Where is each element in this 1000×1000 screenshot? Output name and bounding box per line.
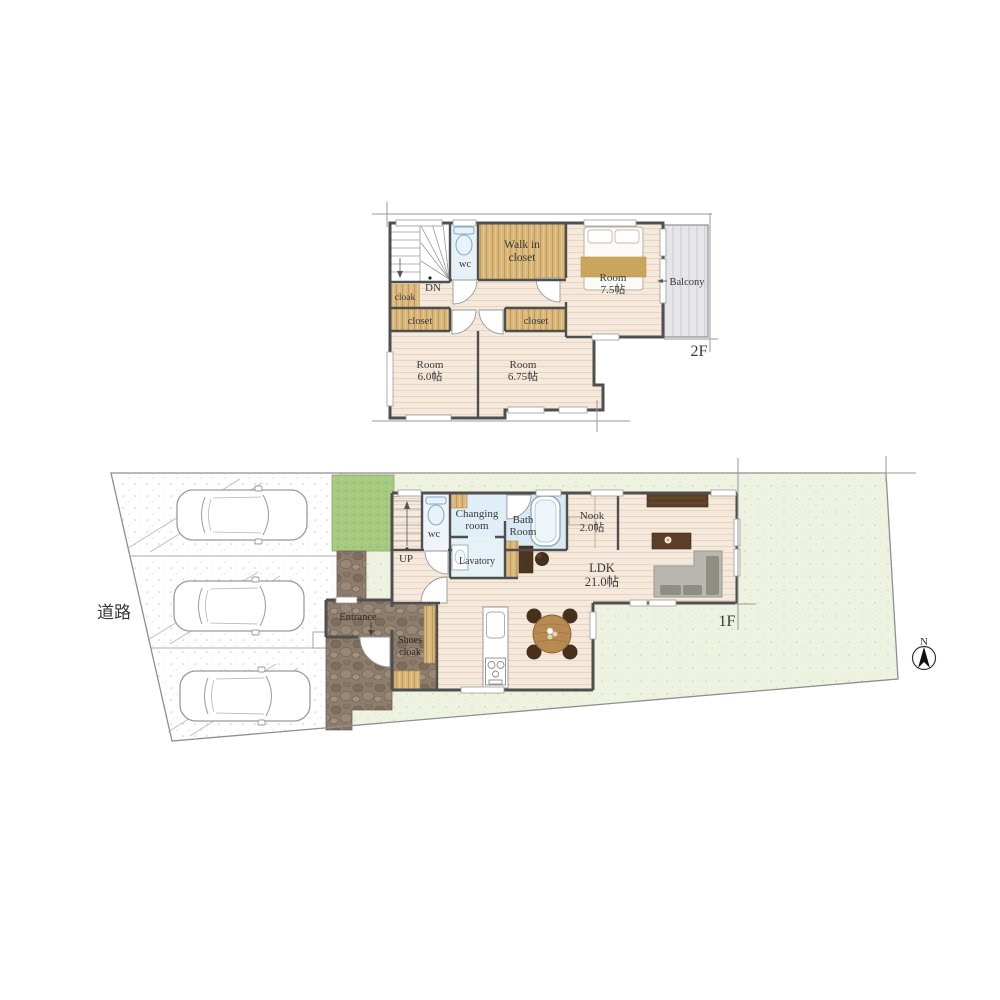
- garden-patch: [332, 475, 394, 551]
- kitchen-stove: [486, 658, 506, 685]
- bathtub-icon: [531, 496, 560, 546]
- dining-set: [527, 609, 578, 660]
- entrance-label: Entrance: [339, 612, 377, 623]
- walkin-closet-label2: closet: [509, 252, 537, 264]
- balcony-label: Balcony: [670, 277, 706, 288]
- study-desk-label: Study: [522, 552, 528, 566]
- wc2-label: wc: [459, 259, 472, 270]
- floorplan-canvas: Study: [0, 0, 1000, 1000]
- floor2-plan: Walk in closet wc DN cloak closet closet…: [387, 220, 708, 421]
- shoes-shelf: [394, 671, 420, 689]
- closet-right-label: closet: [524, 316, 549, 327]
- room675-label1: Room: [510, 359, 537, 371]
- dn-label: DN: [425, 282, 441, 294]
- lavatory-cabinet: [506, 541, 518, 578]
- ldk-label2: 21.0帖: [585, 574, 619, 589]
- shoes-cloak-label2: cloak: [399, 647, 421, 658]
- room60-label1: Room: [417, 359, 444, 371]
- kitchen-sink: [487, 612, 505, 638]
- dining-table: [533, 615, 571, 653]
- stairs-down-marker: [428, 276, 431, 279]
- shoes-cloak-label1: Shoes: [398, 635, 422, 646]
- nook-label2: 2.0帖: [580, 521, 605, 534]
- lavatory-label: Lavatory: [459, 556, 495, 567]
- changing-room-label2: room: [465, 520, 489, 532]
- car-icon: [177, 486, 307, 544]
- up-label: UP: [399, 553, 413, 565]
- toilet-icon: [454, 227, 474, 255]
- kitchen-counter: [483, 607, 508, 688]
- nook-label1: Nook: [580, 510, 605, 522]
- changing-room-label1: Changing: [456, 508, 499, 520]
- floor2-tag: 2F: [691, 343, 708, 360]
- closet-left-label: closet: [408, 316, 433, 327]
- toilet-icon: [426, 497, 446, 525]
- changing-cabinet: [450, 494, 467, 508]
- room75-label1: Room: [600, 272, 627, 284]
- car-icon: [174, 577, 304, 635]
- floor1-tag: 1F: [719, 613, 736, 630]
- room675-label2: 6.75帖: [508, 370, 538, 383]
- cloak-label: cloak: [395, 293, 416, 303]
- car-icon: [180, 667, 310, 725]
- road-label: 道路: [97, 603, 131, 622]
- tv-board: [647, 494, 708, 507]
- wc1-label: wc: [428, 529, 441, 540]
- bath-room-label1: Bath: [513, 514, 534, 526]
- ldk-label1: LDK: [589, 561, 615, 575]
- room60-label2: 6.0帖: [418, 370, 443, 383]
- bath-room-label2: Room: [510, 526, 537, 538]
- coffee-table: [652, 533, 691, 549]
- walkin-closet-label1: Walk in: [504, 239, 540, 251]
- room75-label2: 7.5帖: [601, 283, 626, 296]
- compass-n-label: N: [920, 636, 928, 648]
- floorplan-drawing: Study: [0, 0, 1000, 1000]
- compass-icon: N: [913, 636, 936, 670]
- shoes-shelf: [424, 606, 435, 663]
